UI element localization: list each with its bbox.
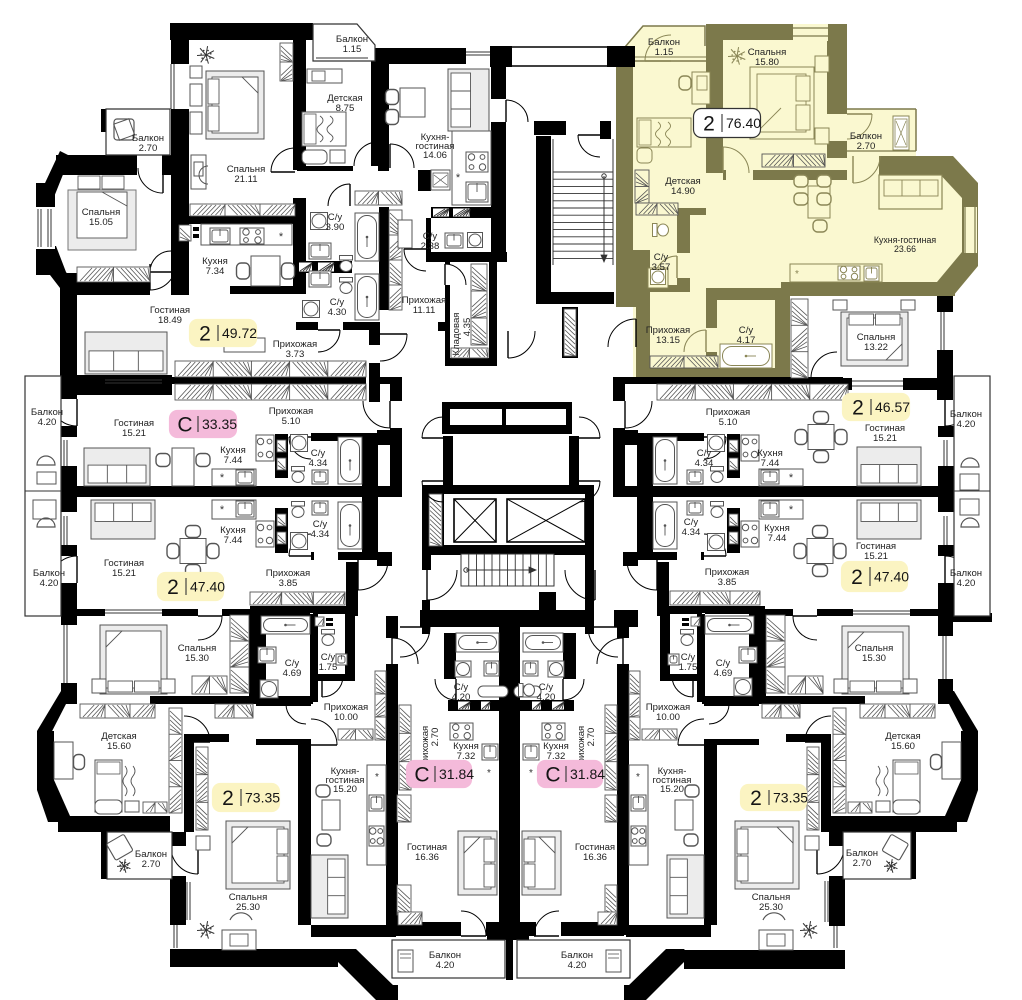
svg-text:*: *: [220, 504, 225, 516]
svg-text:1.75: 1.75: [319, 662, 338, 673]
svg-text:3.85: 3.85: [718, 577, 737, 588]
svg-text:15.20: 15.20: [660, 784, 684, 795]
svg-text:*: *: [789, 472, 794, 484]
svg-text:2: 2: [199, 323, 211, 346]
svg-text:С: С: [545, 764, 560, 787]
svg-text:1.15: 1.15: [655, 47, 674, 58]
svg-text:3.90: 3.90: [326, 222, 345, 233]
svg-text:4.69: 4.69: [283, 668, 302, 679]
svg-text:4.34: 4.34: [311, 529, 330, 540]
svg-text:15.21: 15.21: [112, 568, 136, 579]
svg-text:13.22: 13.22: [864, 342, 888, 353]
svg-text:3.57: 3.57: [652, 262, 671, 273]
svg-text:18.49: 18.49: [158, 315, 182, 326]
svg-text:7.44: 7.44: [224, 535, 243, 546]
svg-text:2: 2: [167, 576, 179, 599]
svg-text:47.40: 47.40: [190, 579, 225, 595]
svg-text:1.75: 1.75: [679, 662, 698, 673]
svg-text:4.69: 4.69: [714, 668, 733, 679]
svg-text:15.21: 15.21: [122, 428, 146, 439]
svg-text:5.10: 5.10: [719, 417, 738, 428]
svg-text:*: *: [279, 231, 284, 243]
svg-text:4.30: 4.30: [328, 307, 347, 318]
svg-text:С: С: [177, 414, 192, 437]
svg-text:23.66: 23.66: [894, 244, 916, 254]
svg-text:76.40: 76.40: [726, 115, 761, 131]
svg-text:4.20: 4.20: [957, 578, 976, 589]
svg-text:14.06: 14.06: [423, 150, 447, 161]
svg-text:1.15: 1.15: [343, 44, 362, 55]
svg-text:10.00: 10.00: [656, 712, 680, 723]
svg-text:15.80: 15.80: [755, 57, 779, 68]
svg-text:33.35: 33.35: [202, 416, 237, 432]
svg-text:4.20: 4.20: [537, 692, 556, 703]
svg-text:15.05: 15.05: [89, 217, 113, 228]
svg-text:8.75: 8.75: [336, 103, 355, 114]
svg-text:15.30: 15.30: [862, 653, 886, 664]
svg-text:Кладовая: Кладовая: [451, 313, 462, 356]
svg-text:*: *: [220, 472, 225, 484]
svg-text:4.20: 4.20: [568, 960, 587, 971]
svg-text:*: *: [487, 768, 491, 779]
svg-text:4.20: 4.20: [38, 417, 57, 428]
svg-text:*: *: [789, 504, 794, 516]
svg-text:4.20: 4.20: [40, 578, 59, 589]
svg-text:21.11: 21.11: [234, 174, 257, 185]
svg-text:15.20: 15.20: [333, 784, 357, 795]
svg-text:4.35: 4.35: [462, 318, 473, 337]
svg-text:2.70: 2.70: [430, 728, 441, 747]
svg-text:4.20: 4.20: [957, 419, 976, 430]
svg-text:4.34: 4.34: [695, 458, 714, 469]
svg-text:15.21: 15.21: [873, 433, 897, 444]
svg-text:11.11: 11.11: [413, 305, 436, 316]
svg-text:2.70: 2.70: [853, 858, 872, 869]
svg-text:47.40: 47.40: [874, 569, 909, 585]
svg-text:7.44: 7.44: [761, 458, 780, 469]
svg-text:13.15: 13.15: [656, 335, 680, 346]
svg-text:49.72: 49.72: [222, 325, 257, 341]
svg-text:4.34: 4.34: [309, 458, 328, 469]
svg-text:7.44: 7.44: [768, 533, 787, 544]
svg-text:14.90: 14.90: [671, 186, 695, 197]
svg-text:46.57: 46.57: [875, 399, 910, 415]
svg-text:31.84: 31.84: [570, 766, 605, 782]
svg-text:*: *: [456, 172, 461, 184]
svg-text:25.30: 25.30: [236, 902, 260, 913]
svg-text:2: 2: [222, 787, 234, 810]
svg-text:*: *: [529, 768, 533, 779]
svg-text:4.20: 4.20: [436, 960, 455, 971]
svg-text:5.10: 5.10: [282, 416, 301, 427]
svg-text:15.60: 15.60: [107, 741, 131, 752]
svg-text:*: *: [795, 269, 799, 280]
svg-text:4.34: 4.34: [682, 527, 701, 538]
svg-text:16.36: 16.36: [583, 852, 607, 863]
svg-text:16.36: 16.36: [415, 852, 439, 863]
svg-text:2.70: 2.70: [857, 141, 876, 152]
svg-text:4.17: 4.17: [737, 335, 756, 346]
svg-text:15.60: 15.60: [891, 741, 915, 752]
svg-text:15.30: 15.30: [185, 653, 209, 664]
svg-text:2.70: 2.70: [139, 143, 158, 154]
svg-text:2: 2: [852, 397, 864, 420]
svg-text:15.21: 15.21: [864, 551, 888, 562]
svg-text:2.70: 2.70: [142, 859, 161, 870]
svg-text:7.44: 7.44: [224, 455, 243, 466]
svg-text:2.70: 2.70: [586, 728, 597, 747]
svg-text:10.00: 10.00: [334, 712, 358, 723]
svg-text:3.85: 3.85: [279, 578, 298, 589]
svg-text:31.84: 31.84: [439, 766, 474, 782]
svg-text:7.34: 7.34: [206, 266, 225, 277]
svg-text:25.30: 25.30: [759, 902, 783, 913]
svg-text:*: *: [375, 772, 379, 783]
svg-text:2.38: 2.38: [421, 241, 440, 252]
svg-text:2: 2: [750, 787, 762, 810]
svg-text:2: 2: [703, 113, 715, 136]
svg-text:4.20: 4.20: [452, 692, 471, 703]
svg-text:С: С: [414, 764, 429, 787]
svg-text:*: *: [636, 772, 640, 783]
svg-text:73.35: 73.35: [245, 790, 280, 806]
svg-text:2: 2: [851, 566, 863, 589]
svg-text:73.35: 73.35: [773, 790, 808, 806]
svg-text:3.73: 3.73: [286, 349, 305, 360]
